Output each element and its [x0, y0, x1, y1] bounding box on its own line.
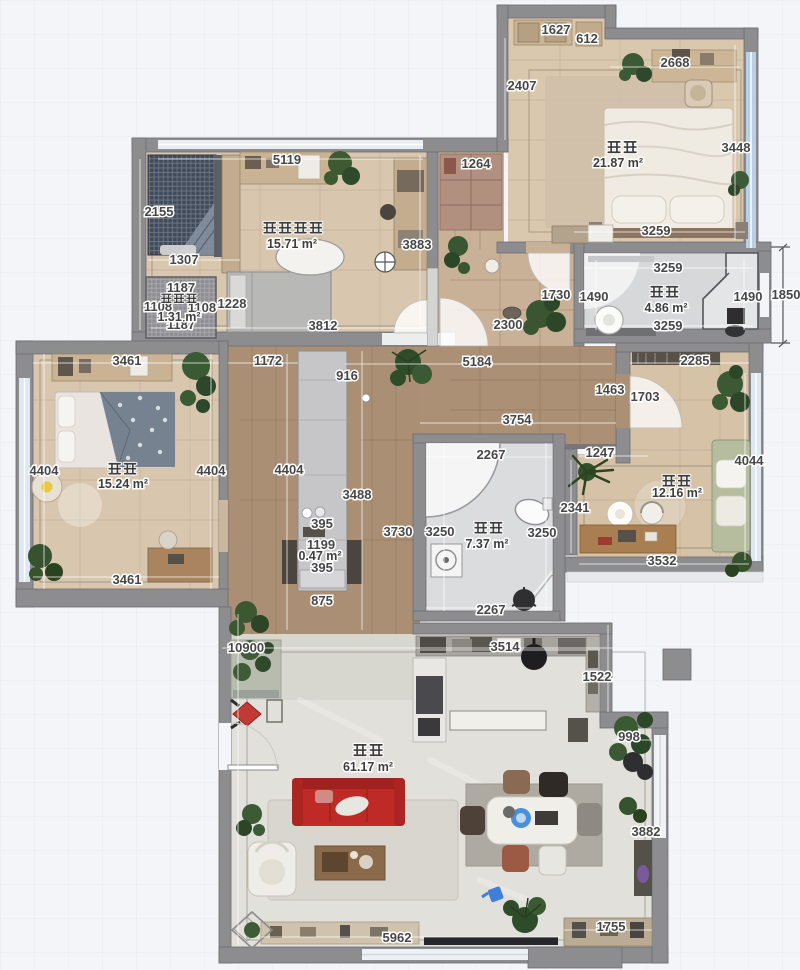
svg-text:3488: 3488: [343, 487, 372, 502]
svg-text:5962: 5962: [383, 930, 412, 945]
svg-text:3730: 3730: [384, 524, 413, 539]
svg-text:4404: 4404: [275, 462, 305, 477]
svg-text:612: 612: [576, 31, 598, 46]
svg-text:4.86 m²: 4.86 m²: [644, 301, 687, 315]
svg-text:1.31 m²: 1.31 m²: [157, 310, 200, 324]
svg-text:1755: 1755: [597, 919, 626, 934]
svg-text:1490: 1490: [734, 289, 763, 304]
svg-text:1522: 1522: [583, 669, 612, 684]
svg-text:12.16 m²: 12.16 m²: [652, 486, 702, 500]
svg-text:3461: 3461: [113, 353, 142, 368]
svg-text:3812: 3812: [309, 318, 338, 333]
svg-text:3250: 3250: [528, 525, 557, 540]
svg-text:2668: 2668: [661, 55, 690, 70]
svg-text:3259: 3259: [654, 318, 683, 333]
svg-text:3259: 3259: [654, 260, 683, 275]
svg-text:2267: 2267: [477, 447, 506, 462]
svg-text:0.47 m²: 0.47 m²: [298, 549, 341, 563]
svg-text:1307: 1307: [170, 252, 199, 267]
svg-text:1247: 1247: [586, 445, 615, 460]
svg-text:4404: 4404: [30, 463, 60, 478]
svg-text:15.24 m²: 15.24 m²: [98, 477, 148, 491]
svg-text:395: 395: [311, 516, 333, 531]
svg-text:3250: 3250: [426, 524, 455, 539]
svg-text:3514: 3514: [491, 639, 521, 654]
svg-text:4404: 4404: [197, 463, 227, 478]
svg-text:3754: 3754: [503, 412, 533, 427]
svg-text:15.71 m²: 15.71 m²: [267, 237, 317, 251]
svg-text:1850: 1850: [772, 287, 800, 302]
svg-text:1730: 1730: [542, 287, 571, 302]
svg-text:3259: 3259: [642, 223, 671, 238]
svg-text:1463: 1463: [596, 382, 625, 397]
svg-text:3883: 3883: [403, 237, 432, 252]
svg-text:5119: 5119: [273, 152, 301, 167]
svg-text:3448: 3448: [722, 140, 751, 155]
svg-text:2285: 2285: [681, 353, 710, 368]
svg-text:1627: 1627: [542, 22, 571, 37]
svg-text:2407: 2407: [508, 78, 537, 93]
svg-text:21.87 m²: 21.87 m²: [593, 156, 643, 170]
svg-text:4044: 4044: [735, 453, 765, 468]
svg-text:10900: 10900: [228, 640, 264, 655]
svg-text:2155: 2155: [145, 204, 174, 219]
svg-text:1490: 1490: [580, 289, 609, 304]
svg-text:2300: 2300: [494, 317, 523, 332]
svg-text:1264: 1264: [462, 156, 492, 171]
svg-text:3882: 3882: [632, 824, 661, 839]
svg-text:998: 998: [618, 729, 640, 744]
svg-text:1172: 1172: [254, 353, 282, 368]
svg-text:3532: 3532: [648, 553, 677, 568]
svg-text:916: 916: [336, 368, 358, 383]
svg-text:61.17 m²: 61.17 m²: [343, 760, 393, 774]
svg-text:2341: 2341: [561, 500, 590, 515]
svg-text:1228: 1228: [218, 296, 247, 311]
svg-text:2267: 2267: [477, 602, 506, 617]
svg-text:7.37 m²: 7.37 m²: [465, 537, 508, 551]
svg-text:875: 875: [311, 593, 333, 608]
svg-text:5184: 5184: [463, 354, 493, 369]
svg-text:3461: 3461: [113, 572, 142, 587]
svg-text:1703: 1703: [631, 389, 660, 404]
